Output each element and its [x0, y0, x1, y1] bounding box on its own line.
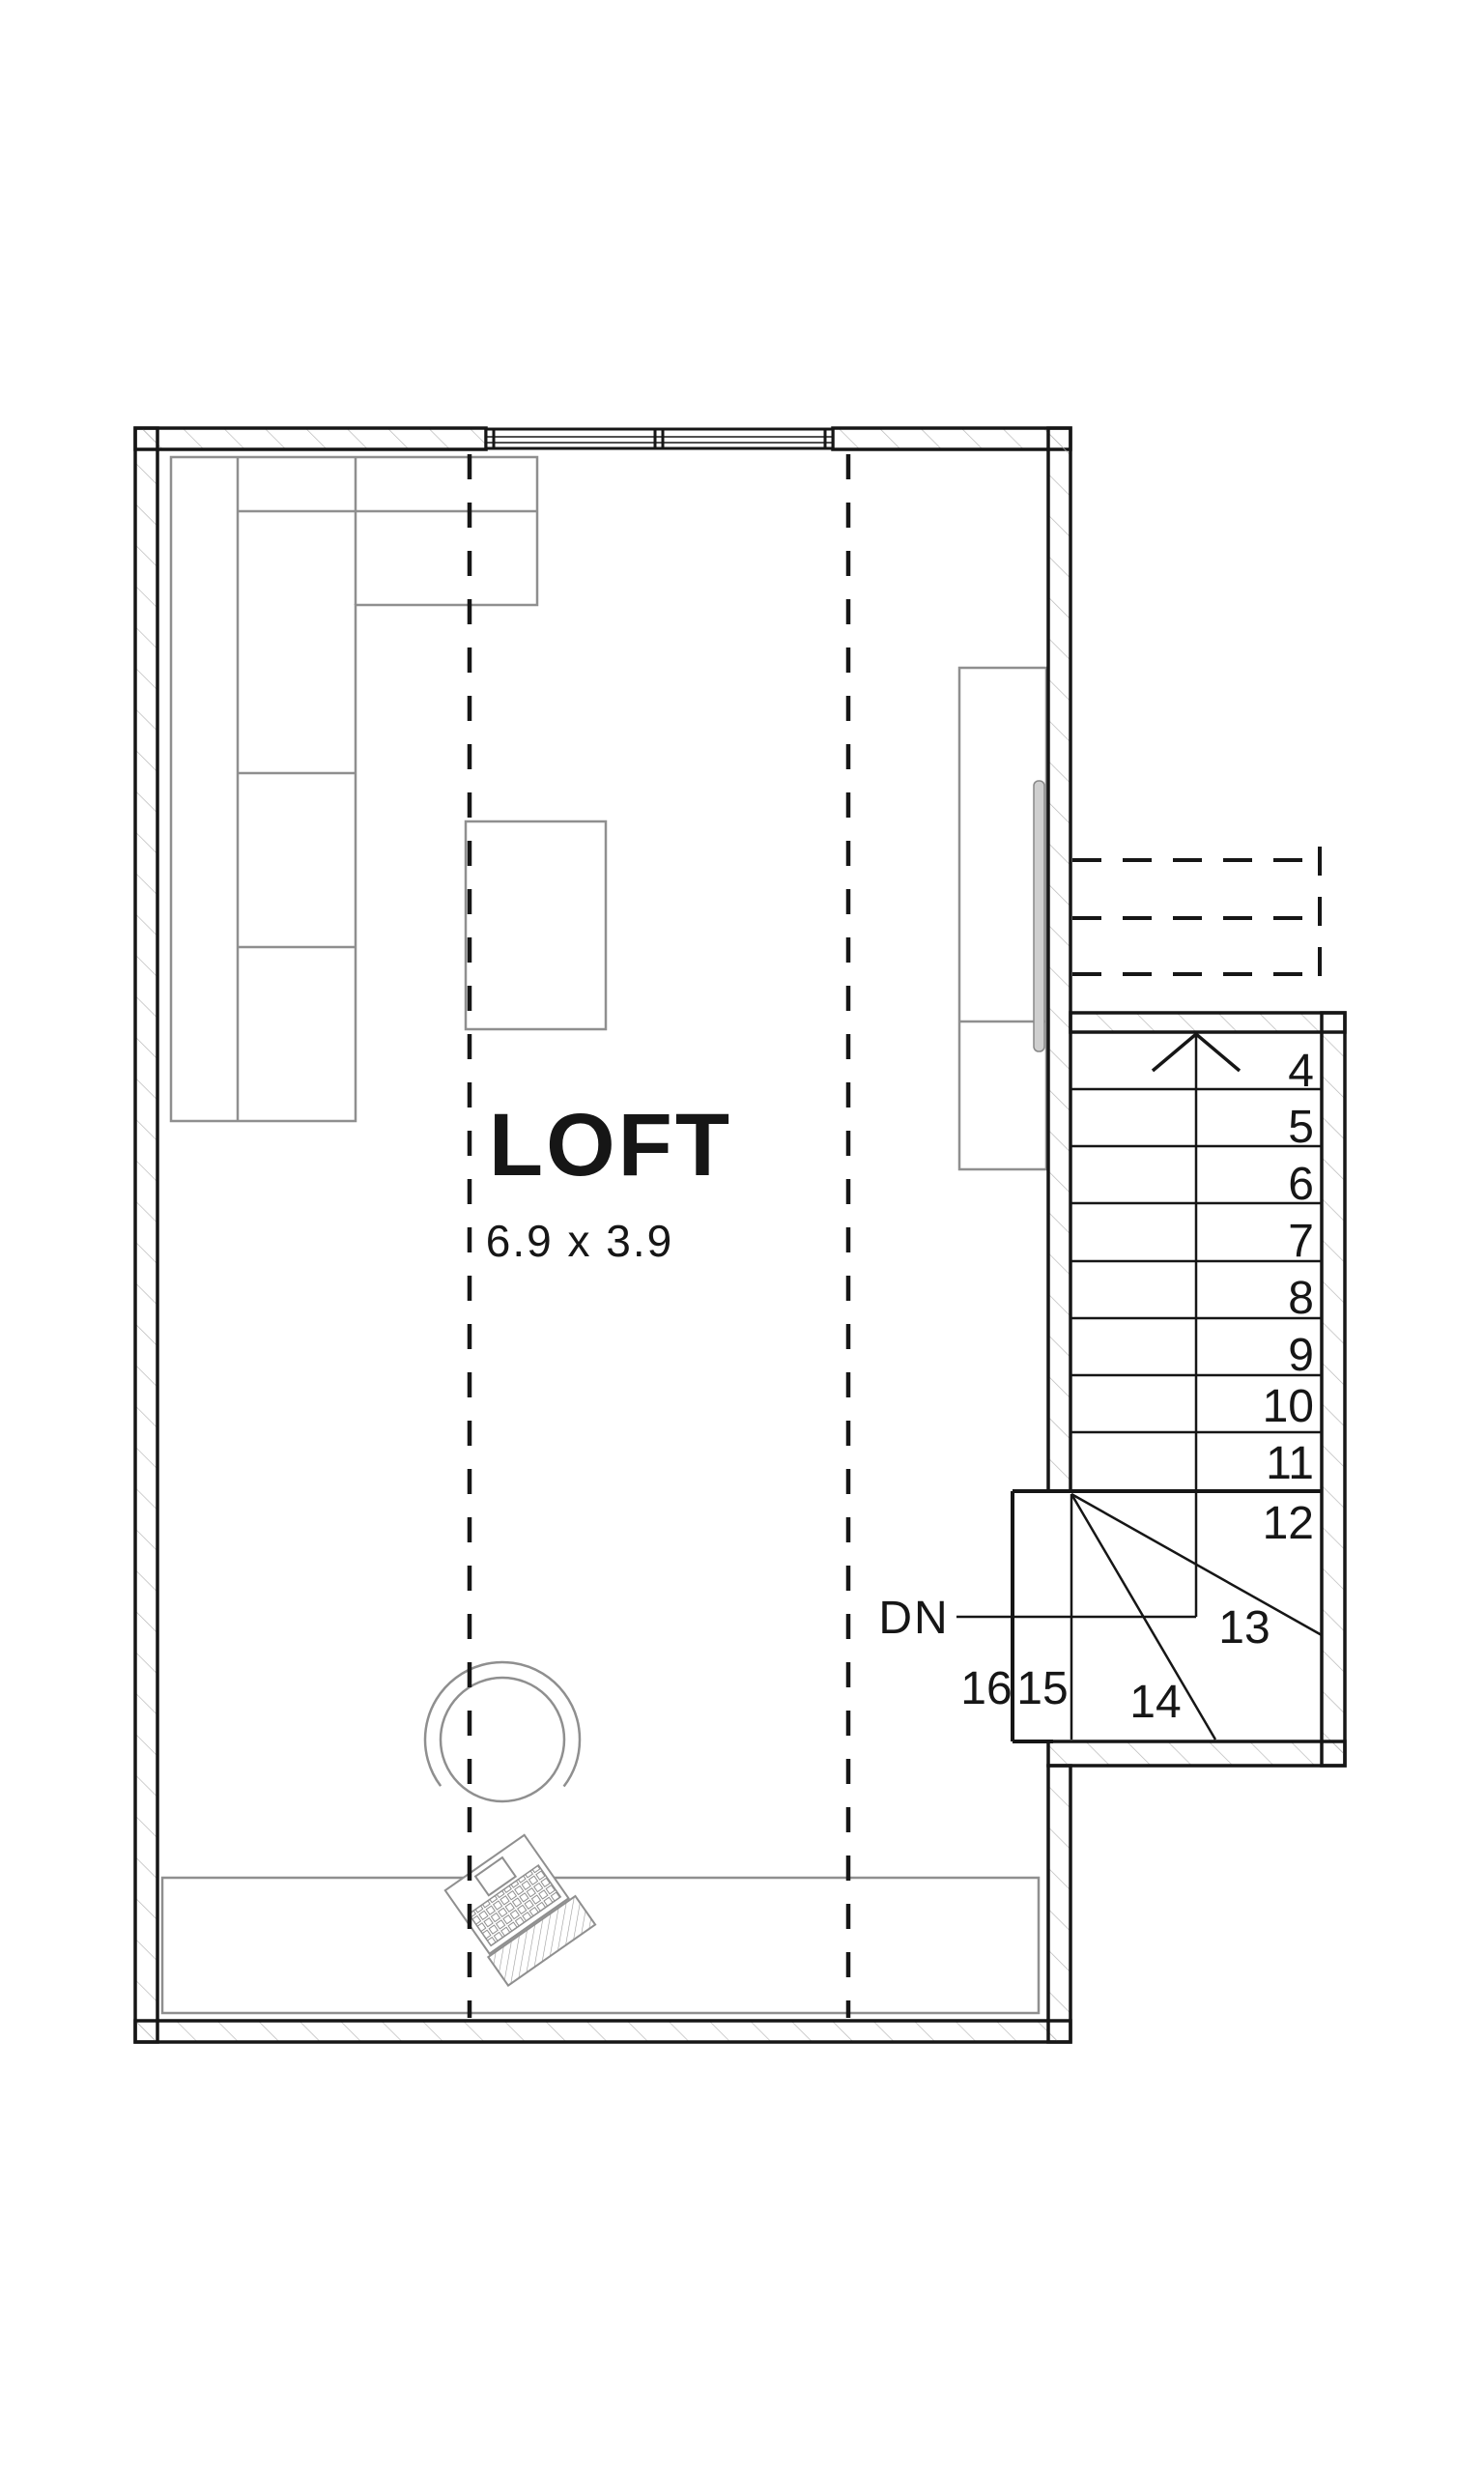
wall-left	[135, 428, 157, 2042]
step-number: 4	[1288, 1046, 1314, 1097]
stair-wall-top	[1070, 1013, 1345, 1032]
step-number: 13	[1218, 1602, 1270, 1654]
room-dimensions-label: 6.9 x 3.9	[486, 1216, 673, 1266]
wall-right-upper	[1048, 428, 1070, 1491]
floor-plan-page: LOFT 6.9 x 3.9 DN 4 5 6 7 8 9 10 11 12 1…	[0, 0, 1484, 2474]
wall-top-right	[833, 428, 1070, 449]
void-outline-dashed	[1072, 847, 1320, 992]
step-number: 16	[960, 1663, 1012, 1714]
window	[486, 429, 833, 448]
step-number: 14	[1129, 1677, 1181, 1728]
wall-bottom	[135, 2021, 1070, 2042]
step-number: 9	[1288, 1330, 1314, 1381]
stair-down-label: DN	[878, 1593, 949, 1644]
stair-wall-right	[1322, 1013, 1345, 1766]
step-number: 6	[1288, 1159, 1314, 1210]
desk	[162, 1878, 1039, 2013]
tv-panel	[1034, 781, 1044, 1051]
room-name-label: LOFT	[489, 1096, 732, 1194]
window-frame	[486, 429, 833, 448]
step-number: 12	[1263, 1498, 1314, 1549]
step-number: 8	[1288, 1273, 1314, 1324]
step-number: 10	[1263, 1381, 1314, 1432]
step-number: 5	[1288, 1102, 1314, 1153]
wall-top-left	[135, 428, 486, 449]
step-number: 7	[1288, 1216, 1314, 1267]
step-number: 11	[1266, 1438, 1314, 1489]
stair-wall-bottom	[1048, 1741, 1345, 1766]
loft-floor-plan: LOFT 6.9 x 3.9 DN 4 5 6 7 8 9 10 11 12 1…	[0, 0, 1484, 2474]
labels: LOFT 6.9 x 3.9 DN 4 5 6 7 8 9 10 11 12 1…	[486, 1046, 1314, 1728]
wall-right-lower	[1048, 1766, 1070, 2042]
desk-chair	[394, 1631, 611, 1848]
step-number: 15	[1016, 1663, 1068, 1714]
coffee-table	[466, 821, 606, 1029]
